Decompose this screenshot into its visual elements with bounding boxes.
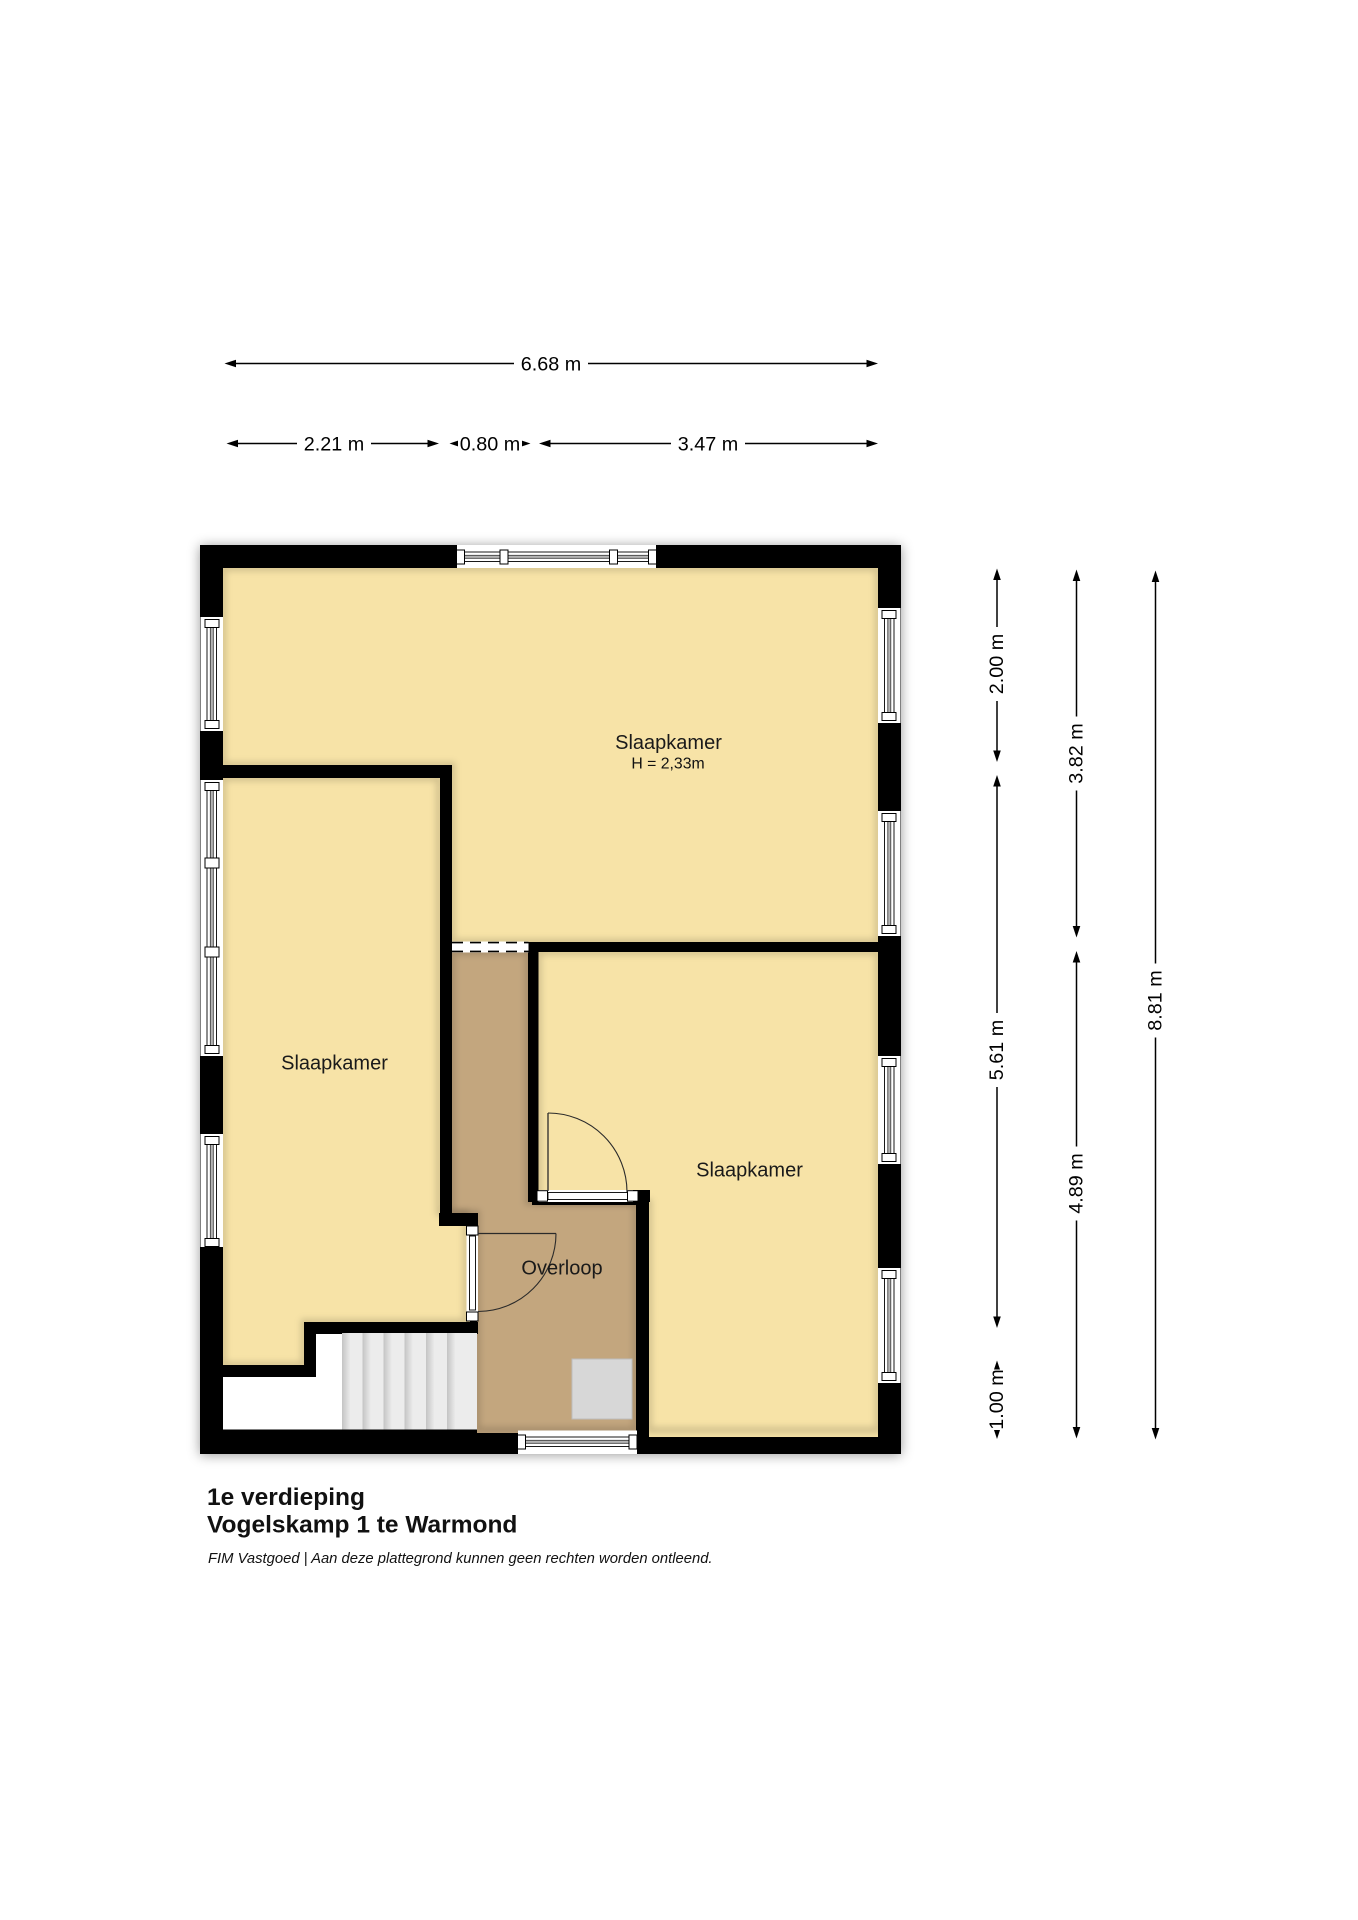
svg-text:Slaapkamer: Slaapkamer bbox=[696, 1160, 803, 1182]
svg-text:3.82 m: 3.82 m bbox=[1066, 723, 1088, 783]
svg-text:2.00 m: 2.00 m bbox=[986, 634, 1008, 694]
svg-text:0.80 m: 0.80 m bbox=[460, 433, 520, 455]
svg-text:6.68 m: 6.68 m bbox=[521, 353, 581, 375]
svg-text:Vogelskamp 1 te Warmond: Vogelskamp 1 te Warmond bbox=[207, 1512, 517, 1539]
svg-text:3.47 m: 3.47 m bbox=[678, 433, 738, 455]
svg-text:FIM Vastgoed | Aan deze platte: FIM Vastgoed | Aan deze plattegrond kunn… bbox=[208, 1551, 713, 1567]
svg-text:5.61 m: 5.61 m bbox=[986, 1020, 1008, 1080]
svg-text:1.00 m: 1.00 m bbox=[986, 1369, 1008, 1429]
svg-text:H = 2,33m: H = 2,33m bbox=[631, 756, 704, 773]
svg-text:Slaapkamer: Slaapkamer bbox=[281, 1053, 388, 1075]
svg-text:Overloop: Overloop bbox=[521, 1258, 602, 1280]
svg-text:Slaapkamer: Slaapkamer bbox=[615, 732, 722, 754]
svg-text:4.89 m: 4.89 m bbox=[1066, 1153, 1088, 1213]
svg-text:8.81 m: 8.81 m bbox=[1145, 970, 1167, 1030]
svg-text:2.21 m: 2.21 m bbox=[304, 433, 364, 455]
svg-text:1e verdieping: 1e verdieping bbox=[207, 1484, 365, 1511]
